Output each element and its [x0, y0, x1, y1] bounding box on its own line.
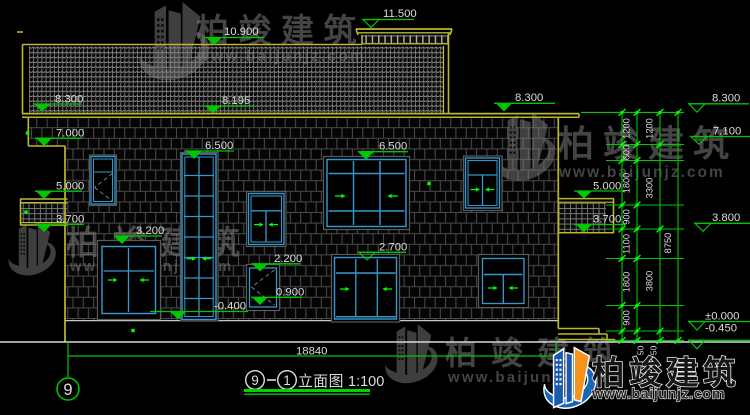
- svg-text:3.200: 3.200: [136, 225, 164, 237]
- svg-text:1200: 1200: [622, 118, 632, 139]
- svg-text:3300: 3300: [645, 178, 655, 199]
- svg-text:11.500: 11.500: [383, 8, 417, 20]
- svg-text:8.300: 8.300: [515, 92, 543, 104]
- svg-text:900: 900: [622, 209, 632, 225]
- svg-text:900: 900: [622, 310, 632, 326]
- svg-text:±0.000: ±0.000: [705, 311, 739, 323]
- svg-text:50: 50: [636, 346, 646, 356]
- svg-text:6.500: 6.500: [205, 140, 233, 152]
- svg-text:柏竣建筑: 柏竣建筑: [592, 354, 740, 391]
- svg-text:1200: 1200: [645, 118, 655, 139]
- svg-text:3.800: 3.800: [712, 212, 740, 224]
- svg-text:3.700: 3.700: [593, 214, 621, 226]
- svg-text:600: 600: [622, 145, 632, 161]
- svg-text:10.900: 10.900: [224, 26, 259, 38]
- svg-text:18840: 18840: [296, 346, 327, 358]
- svg-text:8750: 8750: [663, 233, 673, 254]
- svg-text:8.195: 8.195: [222, 95, 250, 107]
- svg-text:1:100: 1:100: [348, 374, 384, 390]
- svg-text:1: 1: [283, 373, 291, 388]
- svg-text:1100: 1100: [622, 234, 632, 254]
- svg-text:www.baijunjz.com: www.baijunjz.com: [558, 164, 725, 181]
- svg-text:-0.400: -0.400: [214, 301, 246, 313]
- svg-text:6.500: 6.500: [379, 141, 407, 153]
- svg-text:1800: 1800: [622, 272, 632, 293]
- svg-text:柏竣建筑: 柏竣建筑: [196, 12, 366, 49]
- svg-text:www.baijunjz.com: www.baijunjz.com: [591, 387, 725, 403]
- svg-text:7.100: 7.100: [713, 126, 741, 138]
- svg-text:8.300: 8.300: [712, 93, 740, 105]
- svg-text:9: 9: [251, 373, 259, 388]
- svg-text:9: 9: [63, 381, 72, 399]
- svg-text:1800: 1800: [622, 173, 632, 194]
- svg-text:-0.450: -0.450: [705, 323, 737, 335]
- svg-text:3800: 3800: [645, 271, 655, 292]
- svg-text:www.baijunjz.com: www.baijunjz.com: [196, 48, 366, 65]
- svg-text:50: 50: [649, 346, 659, 356]
- svg-text:立面图: 立面图: [298, 373, 344, 390]
